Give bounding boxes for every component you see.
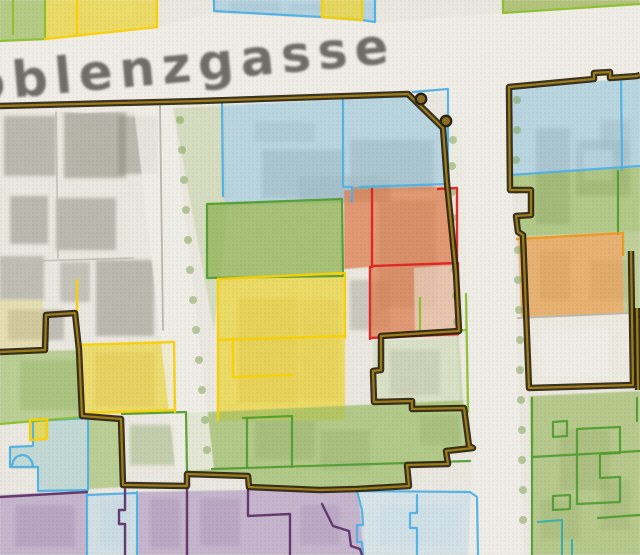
map-viewport[interactable]: oblenzgasse (0, 0, 640, 555)
historical-map-canvas[interactable]: oblenzgasse (0, 0, 640, 555)
paper-grain-overlay (0, 0, 640, 555)
